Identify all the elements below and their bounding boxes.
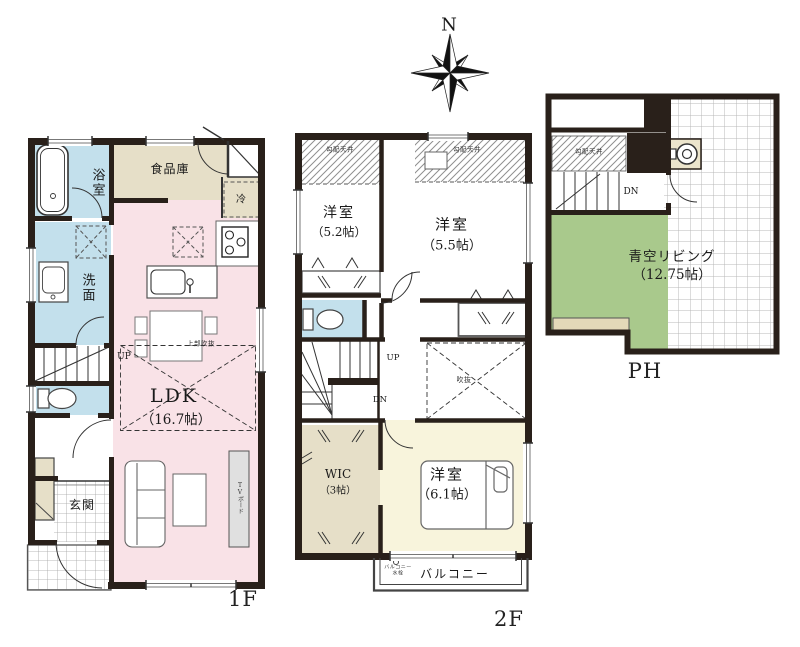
floor-plan-drawing — [0, 0, 800, 647]
label-bedroom1-area: （5.2帖） — [311, 226, 366, 240]
compass-north-label: N — [441, 16, 457, 37]
stairs-ph — [556, 172, 619, 211]
floor-plan-ph — [548, 97, 777, 352]
label-bedroom3-name: 洋室 — [430, 466, 464, 483]
label-bathroom: 浴室 — [89, 168, 104, 198]
coffee-table-icon — [173, 474, 206, 526]
stairs-1f — [35, 346, 109, 382]
label-sloped-ceiling-right: 勾配天井 — [453, 146, 481, 153]
floorplan-canvas: N 浴室 食品庫 冷 洗面 UP 上部吹抜 LDK （16.7帖） TVボード … — [0, 0, 800, 647]
label-ldk-name: LDK — [150, 386, 198, 408]
bedroom2-desk-icon — [425, 152, 447, 169]
compass-icon — [411, 34, 489, 112]
washbasin-icon — [39, 262, 68, 302]
label-sky-living-name: 青空リビング — [629, 250, 716, 266]
label-fridge: 冷 — [236, 194, 246, 206]
label-bedroom2-area: （5.5帖） — [422, 240, 482, 255]
kitchen-counter-icon — [216, 221, 262, 266]
label-bedroom1-name: 洋室 — [323, 205, 355, 221]
floor-label-2f: 2F — [494, 607, 524, 631]
label-up-2f: UP — [387, 354, 400, 364]
label-wic-area: （3帖） — [320, 485, 356, 497]
label-pantry: 食品庫 — [150, 163, 189, 177]
kitchen-island-sink-icon — [147, 266, 217, 298]
label-up-1f: UP — [117, 352, 131, 362]
label-bedroom3-area: （6.1帖） — [417, 489, 477, 504]
sofa-icon — [125, 461, 165, 547]
label-entrance: 玄関 — [69, 499, 95, 513]
label-sky-living-area: （12.75帖） — [632, 268, 711, 284]
label-dn-ph: DN — [623, 187, 638, 197]
label-void-2f: 吹抜 — [457, 376, 472, 384]
label-balcony: バルコニー — [420, 568, 490, 582]
void-2f-dashed — [427, 343, 526, 419]
label-ldk-area: （16.7帖） — [141, 413, 212, 429]
floor-plan-2f — [293, 132, 533, 591]
faucet-icon — [668, 139, 701, 169]
toilet-icon-1f — [38, 389, 76, 409]
floor-label-ph: PH — [628, 359, 662, 383]
label-wic-name: WIC — [325, 468, 351, 482]
label-sloped-ceiling-left: 勾配天井 — [326, 146, 354, 153]
closet-bedroom1 — [302, 258, 380, 293]
label-tv-board: TVボード — [236, 482, 243, 514]
floor-label-1f: 1F — [228, 587, 258, 611]
label-void-above: 上部吹抜 — [187, 340, 215, 347]
porch-tiles — [28, 545, 112, 590]
label-bedroom2-name: 洋室 — [435, 216, 469, 233]
closet-bedroom2 — [459, 290, 527, 336]
bathtub-icon — [37, 145, 68, 215]
label-sloped-ceiling-ph: 勾配天井 — [575, 148, 603, 155]
toilet-icon-2f — [303, 309, 343, 330]
floor-plan-1f — [26, 127, 266, 590]
label-balcony-faucet: バルコニー水栓 — [384, 565, 412, 577]
label-dn-2f: DN — [373, 396, 387, 406]
label-washroom: 洗面 — [79, 273, 94, 303]
stairs-2f — [300, 340, 378, 420]
roof-deck-tiles — [664, 99, 776, 351]
